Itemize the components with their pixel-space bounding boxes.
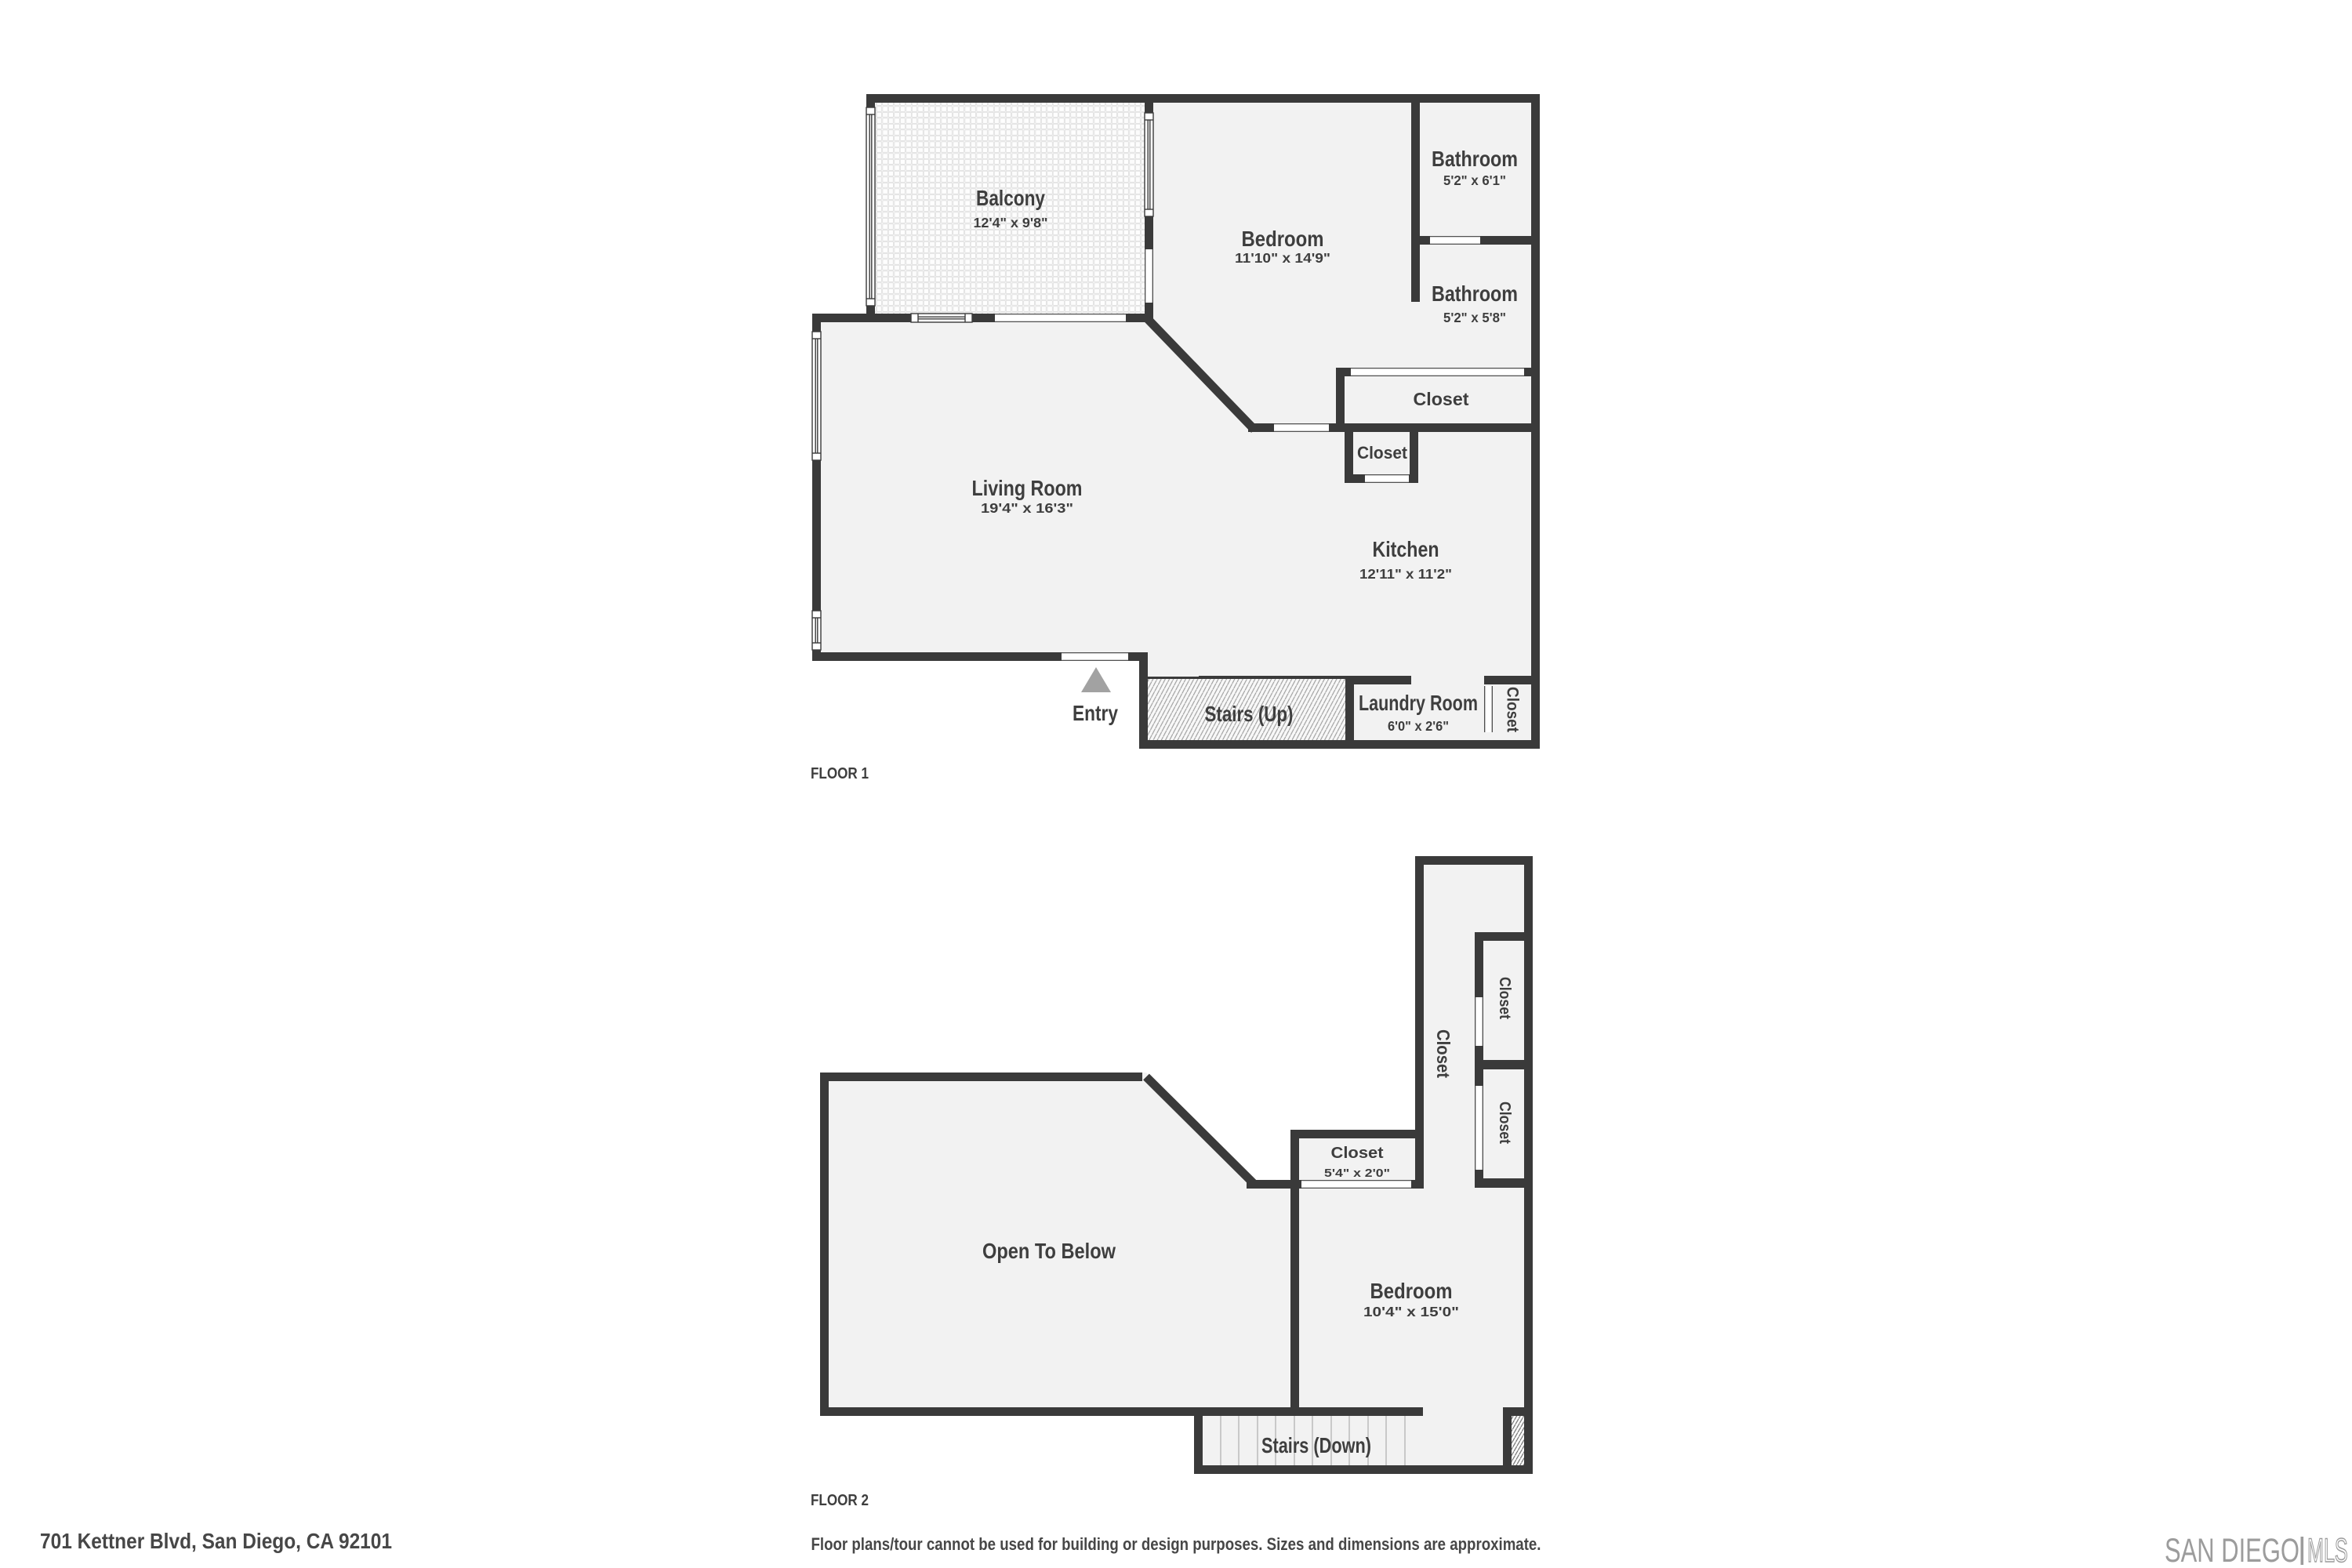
- svg-text:Closet: Closet: [1496, 977, 1513, 1019]
- svg-text:Closet: Closet: [1414, 389, 1469, 409]
- svg-text:Kitchen: Kitchen: [1373, 537, 1439, 561]
- svg-text:701 Kettner Blvd, San Diego, C: 701 Kettner Blvd, San Diego, CA 92101: [40, 1529, 392, 1553]
- svg-text:5'4" x 2'0": 5'4" x 2'0": [1324, 1167, 1390, 1180]
- svg-text:FLOOR 1: FLOOR 1: [811, 765, 869, 782]
- svg-text:Closet: Closet: [1496, 1102, 1513, 1144]
- svg-text:Bathroom: Bathroom: [1432, 281, 1518, 306]
- svg-text:12'4" x 9'8": 12'4" x 9'8": [974, 215, 1048, 230]
- svg-text:Closet: Closet: [1357, 443, 1408, 463]
- svg-text:12'11" x 11'2": 12'11" x 11'2": [1359, 566, 1452, 582]
- svg-text:Stairs (Up): Stairs (Up): [1205, 702, 1294, 726]
- svg-text:Bathroom: Bathroom: [1432, 147, 1518, 171]
- svg-text:Laundry Room: Laundry Room: [1359, 691, 1478, 715]
- svg-text:6'0" x 2'6": 6'0" x 2'6": [1388, 718, 1449, 734]
- svg-text:SAN DIEGO: SAN DIEGO: [2165, 1531, 2299, 1568]
- svg-text:Living Room: Living Room: [972, 476, 1083, 500]
- svg-text:Floor plans/tour cannot be use: Floor plans/tour cannot be used for buil…: [811, 1534, 1541, 1554]
- svg-text:Closet: Closet: [1433, 1029, 1454, 1078]
- svg-text:Open To Below: Open To Below: [982, 1239, 1116, 1263]
- svg-text:19'4" x 16'3": 19'4" x 16'3": [981, 500, 1073, 516]
- svg-text:MLS: MLS: [2307, 1532, 2348, 1568]
- svg-text:10'4" x 15'0": 10'4" x 15'0": [1363, 1304, 1459, 1319]
- svg-text:5'2" x 6'1": 5'2" x 6'1": [1443, 172, 1506, 188]
- svg-text:Bedroom: Bedroom: [1242, 227, 1324, 251]
- svg-text:FLOOR 2: FLOOR 2: [811, 1492, 869, 1509]
- svg-text:Balcony: Balcony: [976, 186, 1045, 210]
- svg-text:Closet: Closet: [1331, 1145, 1384, 1162]
- svg-text:Entry: Entry: [1073, 701, 1118, 725]
- svg-text:Stairs (Down): Stairs (Down): [1261, 1433, 1371, 1457]
- svg-text:Closet: Closet: [1504, 687, 1522, 732]
- svg-text:11'10" x 14'9": 11'10" x 14'9": [1235, 250, 1330, 266]
- svg-text:5'2" x 5'8": 5'2" x 5'8": [1443, 310, 1506, 325]
- svg-text:Bedroom: Bedroom: [1370, 1279, 1453, 1303]
